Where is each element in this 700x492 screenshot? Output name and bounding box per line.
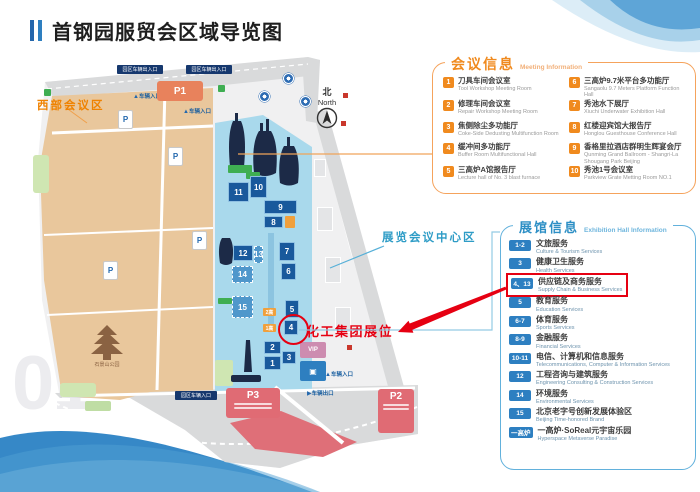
exhibition-item: 一高炉一高炉·SoReal元宇宙乐园Hyperspace Metaverse P… [509,426,689,442]
furnace-badge-1: 1高 [263,324,276,332]
parking-p1: P1 [157,81,203,101]
station-icon [283,73,294,84]
meeting-info-panel: 会议信息 Meeting Information 1刀具车间会议室Tool Wo… [432,62,696,194]
parking-p2: P2 [378,389,414,433]
booth-8: 8 [264,216,283,228]
parking-p3: P3 [226,388,280,418]
page-header: 首钢园服贸会区域导览图 [30,16,283,45]
furnace-badge-2: 2高 [263,308,276,316]
green-patch [85,401,111,411]
parking-icon: P [168,147,183,166]
station-icon [259,91,270,102]
booth-callout-label: 化工集团展位 [306,321,393,340]
booth-6: 6 [281,263,296,280]
title-bar-icon [38,20,42,41]
booth-13: 13 [254,246,263,263]
title-bar-icon [30,20,34,41]
exhibition-item: 8-9金融服务Financial Services [509,333,689,349]
shuttle-stop-icon [218,85,225,92]
building-icon: ▣ [309,367,317,376]
meeting-item: 1刀具车间会议室Tool Workshop Meeting Room [443,76,563,99]
north-indicator: 北 North [310,85,344,129]
hydrant-icon [347,345,352,350]
green-patch [215,360,233,386]
west-conference-area-label: 西部会议区 [37,97,105,113]
booth-10: 10 [250,176,267,198]
meeting-item: 3焦侧除尘多功能厅Coke-Side Dedusting Multifuncti… [443,121,563,143]
vehicle-entrance-label: ▲车辆入口 [183,107,211,115]
exhibition-panel-title: 展馆信息 Exhibition Hall Information [513,217,673,236]
meeting-item: 7秀池水下展厅Xiuchi Underwater Exhibition Hall [569,99,689,121]
service-block [285,216,295,228]
exhibition-item: 5教育服务Education Services [509,296,689,312]
building [325,257,341,283]
booth-2: 2 [264,341,281,354]
top-right-wave-decoration [552,0,700,58]
meeting-item: 6三高炉9.7米平台多功能厅Sangaolu 9.7 Meters Platfo… [569,76,689,99]
meeting-item: 2修理车间会议室Repair Workshop Meeting Room [443,99,563,121]
low-building-icon [231,375,261,382]
booth-14: 14 [232,266,253,283]
building [317,207,333,231]
green-patch [33,155,49,193]
venue-map: 西部会议区 园区车辆出入口 园区车辆出入口 ▲车辆入口 ▲车辆入口 ▲车辆入口 … [25,55,435,475]
sky-bridge [268,233,274,331]
exhibition-item: 6-7体育服务Sports Services [509,315,689,331]
pagoda-label: 石景山公园 [77,361,137,368]
parking-icon: P [118,110,133,129]
shuttle-label [218,298,232,304]
exhibition-item-highlighted: 4、13供应链及商务服务Supply Chain & Business Serv… [506,273,628,297]
exhibition-info-panel: 展馆信息 Exhibition Hall Information 1-2文旅服务… [500,225,696,470]
exhibition-item: 14环境服务Environmental Services [509,389,689,405]
compass-icon [316,107,338,129]
booth-1: 1 [264,356,281,370]
booth-9: 9 [264,200,297,214]
building [314,159,326,177]
exhibition-item: 10-11电信、计算机和信息服务Telecommunications, Comp… [509,352,689,368]
booth-7: 7 [279,242,295,261]
exhibition-item: 1-2文旅服务Culture & Tourism Services [509,239,689,255]
exhibition-item: 15北京老字号创新发展体验区Beijing Time-honored Brand [509,407,689,423]
meeting-item: 9香格里拉酒店群明生辉宴会厅Qunming Grand Ballroom - S… [569,142,689,165]
meeting-item: 8红楼迎宾馆大报告厅Honglou Guesthouse Conference … [569,121,689,143]
parking-icon: P [192,231,207,250]
green-patch [60,383,96,397]
exhibition-item: 12工程咨询与建筑服务Engineering Consulting & Cons… [509,370,689,386]
info-block: ▣ [300,361,326,381]
park-entrance-label: 园区车辆入口 [175,391,217,400]
parking-icon: P [103,261,118,280]
booth-3: 3 [282,351,296,364]
booth-15: 15 [232,296,253,318]
vip-block: VIP [300,342,326,358]
vehicle-entrance-label: ▲车辆入口 [325,370,353,378]
west-conference-area [40,88,213,400]
vehicle-exit-label: ▶车辆出口 [307,389,334,397]
booth-11: 11 [228,182,249,202]
meeting-panel-title: 会议信息 Meeting Information [445,54,588,74]
booth-12: 12 [233,245,253,261]
center-area-label: 展览会议中心区 [382,229,477,245]
page-title: 首钢园服贸会区域导览图 [52,16,283,45]
exhibition-item: 3健康卫生服务Health Services [509,257,689,273]
shuttle-stop-icon [44,89,51,96]
gate-label: 园区车辆出入口 [186,65,232,74]
meeting-item: 5三高炉A馆报告厅Lecture hall of No. 3 blast fur… [443,165,563,187]
meeting-item: 10秀池1号会议室Parkview Grate Metting Room NO.… [569,165,689,187]
gate-label: 园区车辆出入口 [117,65,163,74]
meeting-item: 4缓冲间多功能厅Buffer Room Multifunctional Hall [443,142,563,165]
highlight-circle [278,314,309,345]
